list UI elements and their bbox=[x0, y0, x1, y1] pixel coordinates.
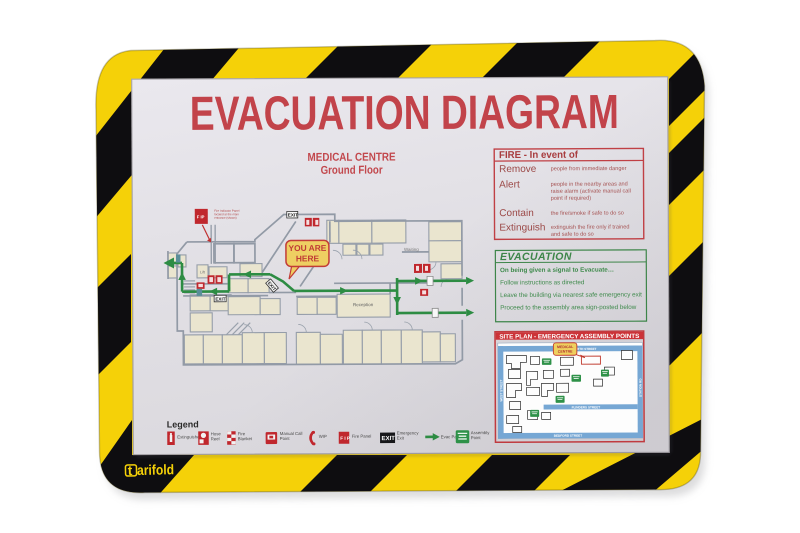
svg-text:Waiting: Waiting bbox=[404, 247, 419, 252]
svg-text:CENTRE: CENTRE bbox=[558, 350, 573, 354]
svg-text:STATION RD: STATION RD bbox=[638, 378, 642, 397]
svg-text:Alert: Alert bbox=[499, 179, 520, 190]
svg-text:WEST STREET: WEST STREET bbox=[499, 379, 503, 401]
svg-text:raise alarm (activate manual c: raise alarm (activate manual call bbox=[551, 188, 631, 194]
svg-text:Remove: Remove bbox=[499, 164, 537, 175]
svg-text:Reception: Reception bbox=[353, 302, 374, 307]
svg-text:WIP: WIP bbox=[319, 434, 327, 439]
svg-text:Lift: Lift bbox=[200, 270, 205, 274]
svg-text:EVACUATION DIAGRAM: EVACUATION DIAGRAM bbox=[190, 86, 619, 141]
svg-text:the fire/smoke if safe to do s: the fire/smoke if safe to do so bbox=[551, 211, 624, 217]
svg-text:YOU ARE: YOU ARE bbox=[288, 243, 326, 253]
svg-text:Exit: Exit bbox=[397, 435, 405, 440]
svg-text:extinguish the fire only if tr: extinguish the fire only if trained bbox=[551, 224, 630, 230]
svg-text:people in the nearby areas and: people in the nearby areas and bbox=[551, 182, 628, 188]
svg-text:F I P: F I P bbox=[340, 436, 350, 441]
svg-text:Proceed to the assembly area s: Proceed to the assembly area sign-posted… bbox=[500, 304, 637, 312]
svg-text:F IP: F IP bbox=[197, 214, 205, 219]
svg-text:and safe to do so: and safe to do so bbox=[551, 232, 594, 238]
svg-text:Blanket: Blanket bbox=[238, 436, 253, 441]
svg-text:t: t bbox=[128, 463, 133, 478]
svg-text:Leave the building via nearest: Leave the building via nearest safe emer… bbox=[500, 291, 642, 299]
svg-text:MEDICAL CENTRE: MEDICAL CENTRE bbox=[308, 152, 396, 164]
svg-text:Extinguisher: Extinguisher bbox=[177, 434, 201, 439]
svg-text:SITE PLAN - EMERGENCY ASSEMB: SITE PLAN - EMERGENCY ASSEMBLY POINTS bbox=[499, 333, 639, 341]
svg-text:FIRE - In event of: FIRE - In event of bbox=[499, 150, 579, 161]
svg-text:Legend: Legend bbox=[167, 419, 199, 429]
svg-text:point if required): point if required) bbox=[551, 196, 592, 202]
svg-text:Contain: Contain bbox=[499, 208, 534, 219]
svg-text:people from immediate danger: people from immediate danger bbox=[551, 166, 627, 172]
svg-text:Ground Floor: Ground Floor bbox=[321, 165, 383, 177]
svg-text:Reel: Reel bbox=[211, 436, 220, 441]
svg-text:EXIT: EXIT bbox=[382, 436, 396, 442]
svg-text:On being given a signal to Eva: On being given a signal to Evacuate… bbox=[500, 267, 614, 274]
svg-text:entrance (shown): entrance (shown) bbox=[214, 216, 236, 220]
svg-text:Follow instructions as directe: Follow instructions as directed bbox=[500, 279, 585, 286]
svg-text:arifold: arifold bbox=[137, 461, 174, 478]
svg-text:Point: Point bbox=[280, 436, 291, 441]
svg-text:Point: Point bbox=[471, 435, 482, 440]
svg-text:EXIT: EXIT bbox=[288, 212, 298, 217]
svg-text:Fire Panel: Fire Panel bbox=[352, 434, 372, 439]
svg-text:EXIT: EXIT bbox=[215, 297, 225, 302]
svg-text:FLINDERS STREET: FLINDERS STREET bbox=[572, 405, 601, 409]
svg-text:Extinguish: Extinguish bbox=[499, 222, 545, 233]
svg-text:EVACUATION: EVACUATION bbox=[500, 251, 572, 263]
svg-text:MEDICAL: MEDICAL bbox=[557, 345, 574, 349]
svg-text:BEDFORD STREET: BEDFORD STREET bbox=[554, 434, 582, 438]
svg-text:HERE: HERE bbox=[296, 253, 320, 263]
